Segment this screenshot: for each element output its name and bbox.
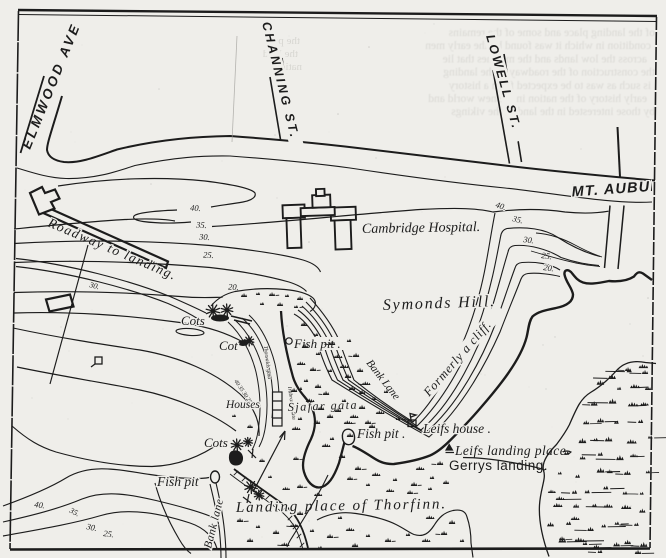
- svg-text:Leifs landing place: Leifs landing place: [454, 443, 566, 458]
- svg-text:Cots: Cots: [204, 435, 228, 450]
- svg-text:25.: 25.: [203, 250, 214, 261]
- svg-text:25.: 25.: [103, 528, 115, 539]
- svg-text:20.: 20.: [543, 262, 555, 273]
- svg-text:30.: 30.: [198, 231, 210, 242]
- svg-text:20.: 20.: [228, 282, 239, 293]
- svg-text:Fish pit: Fish pit: [156, 474, 200, 489]
- svg-text:early history of the nation in: early history of the nation in the new w…: [428, 93, 647, 105]
- svg-text:of the landing place and some: of the landing place and some of the rem…: [448, 27, 655, 39]
- svg-text:is such as was to be expected: is such as was to be expected from a his…: [449, 80, 651, 92]
- svg-text:Sjafar gata: Sjafar gata: [288, 398, 359, 414]
- svg-text:40.: 40.: [190, 203, 201, 214]
- svg-text:by those interested in the lan: by those interested in the land of the v…: [451, 106, 655, 118]
- svg-text:Cambridge Hospital.: Cambridge Hospital.: [362, 220, 480, 237]
- svg-text:condition in which it was foun: condition in which it was found by the e…: [425, 40, 651, 52]
- svg-text:Cot: Cot: [219, 338, 238, 353]
- svg-text:Cots: Cots: [181, 313, 205, 328]
- svg-text:40.: 40.: [34, 499, 46, 510]
- svg-text:Leifs house .: Leifs house .: [422, 421, 491, 436]
- svg-text:35.: 35.: [195, 219, 207, 230]
- svg-text:Fish pit .: Fish pit .: [356, 426, 405, 441]
- svg-text:across the low lands and the m: across the low lands and the marshes tha…: [443, 53, 647, 65]
- svg-text:30.: 30.: [522, 234, 535, 246]
- svg-text:the construction of the roadwa: the construction of the roadway to the l…: [443, 67, 655, 79]
- svg-text:Houses: Houses: [225, 399, 260, 411]
